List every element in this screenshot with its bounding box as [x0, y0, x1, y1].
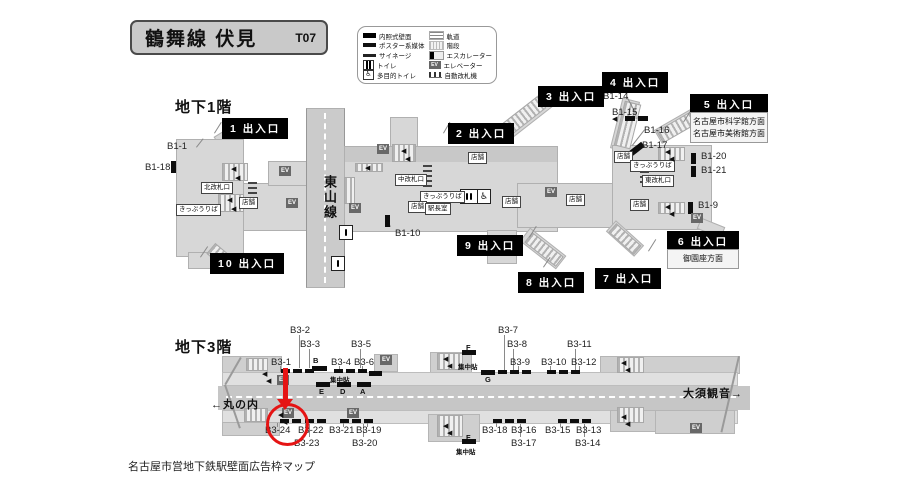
- ad-position-label: B3-5: [351, 339, 371, 350]
- elevator-box: EV: [279, 166, 291, 176]
- person-glyph: [466, 193, 468, 200]
- elevator-box: EV: [690, 423, 702, 433]
- ad-position-label: B1-10: [395, 228, 420, 239]
- position-letter-label: A: [360, 387, 365, 396]
- ad-media-bar: [547, 370, 556, 374]
- ad-media-bar: [334, 369, 343, 373]
- escalator-arrow-icon: ◀: [262, 371, 267, 378]
- position-letter-label: C: [374, 369, 379, 378]
- escalator-arrow-icon: ◀: [443, 423, 448, 430]
- ad-position-label: B1-18: [145, 162, 170, 173]
- ad-position-label: B3-6: [354, 357, 374, 368]
- escalator-arrow-icon: ◀: [625, 421, 630, 428]
- position-letter-label: D: [340, 387, 345, 396]
- ad-position-label: B3-10: [541, 357, 566, 368]
- highlight-arrow: [283, 368, 288, 401]
- multi-toilet-icon: ♿: [477, 189, 491, 204]
- exit-label: 4 出入口: [602, 72, 668, 93]
- escalator-arrow-icon: ◀: [621, 414, 626, 421]
- ad-position-label: B3-4: [331, 357, 351, 368]
- facility-label: 店舗: [502, 196, 521, 208]
- ad-media-bar: [385, 215, 390, 227]
- b3-upper-platform: [222, 372, 738, 386]
- stairs: [246, 358, 268, 371]
- exit-label: 9 出入口: [457, 235, 523, 256]
- leader-line: [309, 349, 310, 368]
- ad-media-bar: [493, 419, 502, 423]
- position-letter-label: F: [466, 433, 471, 442]
- escalator-arrow-icon: ◀: [669, 156, 674, 163]
- position-letter-label: G: [485, 375, 491, 384]
- ad-media-bar: [293, 369, 302, 373]
- ad-media-bar: [510, 370, 519, 374]
- escalator-arrow-icon: ◀: [665, 204, 670, 211]
- elevator-box: EV: [380, 355, 392, 365]
- escalator-arrow-icon: ◀: [266, 378, 271, 385]
- ad-media-bar: [691, 153, 696, 164]
- ad-media-bar: [317, 419, 326, 423]
- person-glyph: [470, 193, 472, 200]
- escalator-arrow-icon: ◀: [405, 156, 410, 163]
- ad-media-bar: [352, 419, 361, 423]
- position-letter-label: E: [319, 387, 324, 396]
- ad-position-label: B3-3: [300, 339, 320, 350]
- ad-media-bar: [364, 419, 373, 423]
- ad-media-bar: [582, 419, 591, 423]
- elevator-box: EV: [691, 213, 703, 223]
- elevator-box: EV: [377, 144, 389, 154]
- position-letter-label: B: [313, 356, 318, 365]
- ad-position-label: B1-15: [612, 107, 637, 118]
- toilet-icon: [339, 225, 353, 240]
- escalator-arrow-icon: ◀: [443, 356, 448, 363]
- toilet-icon: [331, 256, 345, 271]
- elevator-box: EV: [545, 187, 557, 197]
- stairs: [344, 177, 355, 204]
- facility-label: きっぷうりば: [176, 204, 221, 216]
- exit-label: 1 出入口: [222, 118, 288, 139]
- ad-position-label: B3-20: [352, 438, 377, 449]
- ad-position-label: B3-1: [271, 357, 291, 368]
- ad-position-label: B3-16: [511, 425, 536, 436]
- cluster-posting-label: 集中貼: [456, 446, 476, 456]
- exit-label: 8 出入口: [518, 272, 584, 293]
- ad-position-label: B3-19: [356, 425, 381, 436]
- facility-label: 北改札口: [201, 182, 233, 194]
- facility-label: 駅長室: [425, 203, 451, 215]
- ad-position-label: B3-2: [290, 325, 310, 336]
- facility-label: 中改札口: [395, 174, 427, 186]
- exit-info-box: 御園座方面: [667, 249, 739, 269]
- station-ad-map: 鶴舞線 伏見 T07 地下1階 地下3階 内照式壁面ポスター系媒体サイネージトイ…: [0, 0, 919, 491]
- ad-position-label: B1-16: [644, 125, 669, 136]
- escalator-arrow-icon: ◀: [231, 166, 236, 173]
- elevator-box: EV: [349, 203, 361, 213]
- exit-label: 7 出入口: [595, 268, 661, 289]
- escalator-arrow-icon: ◀: [235, 175, 240, 182]
- ad-position-label: B3-7: [498, 325, 518, 336]
- escalator-arrow-icon: ◀: [401, 148, 406, 155]
- escalator-arrow-icon: ◀: [447, 363, 452, 370]
- leader-line: [504, 335, 505, 370]
- ad-media-bar: [517, 419, 526, 423]
- ad-media-bar: [346, 369, 355, 373]
- ad-position-label: B3-13: [576, 425, 601, 436]
- ad-position-label: B3-11: [567, 339, 592, 350]
- ad-position-label: B1-17: [642, 140, 667, 151]
- person-glyph: [345, 229, 347, 236]
- cluster-posting-label: 集中貼: [458, 361, 478, 371]
- ad-media-bar: [570, 419, 579, 423]
- ad-position-label: B1-9: [698, 200, 718, 211]
- exit-label: 2 出入口: [448, 123, 514, 144]
- elevator-box: EV: [347, 408, 359, 418]
- position-letter-label: F: [466, 343, 471, 352]
- escalator-arrow-icon: ◀: [365, 165, 370, 172]
- escalator-arrow-icon: ◀: [447, 430, 452, 437]
- elevator-box: EV: [286, 198, 298, 208]
- cluster-posting-label: 集中貼: [330, 374, 350, 384]
- ad-media-bar: [340, 419, 349, 423]
- ad-position-label: B3-17: [511, 438, 536, 449]
- escalator-arrow-icon: ◀: [231, 206, 236, 213]
- escalator-arrow-icon: ◀: [621, 360, 626, 367]
- ad-media-bar: [312, 366, 327, 371]
- track-centerline: [226, 396, 736, 398]
- escalator-arrow-icon: ◀: [625, 367, 630, 374]
- ad-position-label: B1-21: [701, 165, 726, 176]
- ad-position-label: B3-21: [329, 425, 354, 436]
- exit-label: 3 出入口: [538, 86, 604, 107]
- map-caption: 名古屋市営地下鉄駅壁面広告枠マップ: [128, 458, 315, 474]
- ad-media-bar: [691, 166, 696, 177]
- facility-label: 店舗: [630, 199, 649, 211]
- facility-label: 東改札口: [642, 175, 674, 187]
- ad-position-label: B3-8: [507, 339, 527, 350]
- ad-position-label: B3-15: [545, 425, 570, 436]
- ad-media-bar: [171, 161, 176, 173]
- ad-media-bar: [498, 370, 507, 374]
- facility-label: 店舗: [468, 152, 487, 164]
- direction-label: ←丸の内: [211, 396, 259, 412]
- ad-media-bar: [505, 419, 514, 423]
- ad-position-label: B3-18: [482, 425, 507, 436]
- exit-info-line: 名古屋市科学館方面: [692, 116, 766, 128]
- ad-position-label: B3-14: [575, 438, 600, 449]
- exit-info-line: 御園座方面: [669, 253, 737, 265]
- ad-media-bar: [358, 369, 367, 373]
- highlight-arrow-head: [277, 399, 293, 410]
- ad-position-label: B1-1: [167, 141, 187, 152]
- ad-media-bar: [559, 370, 568, 374]
- ad-media-bar: [638, 116, 648, 121]
- exit-info-box: 名古屋市科学館方面名古屋市美術館方面: [690, 112, 768, 143]
- escalator-arrow-icon: ◀: [669, 211, 674, 218]
- ad-media-bar: [522, 370, 531, 374]
- exit-label: 10 出入口: [210, 253, 284, 274]
- facility-label: 店舗: [566, 194, 585, 206]
- escalator-arrow-icon: ◀: [227, 197, 232, 204]
- exit-info-line: 名古屋市美術館方面: [692, 128, 766, 140]
- direction-label: 大須観音→: [683, 385, 743, 401]
- ad-position-label: B3-12: [571, 357, 596, 368]
- facility-label: 店舗: [239, 197, 258, 209]
- ad-media-bar: [558, 419, 567, 423]
- ticket-gates: [248, 180, 257, 194]
- ad-position-label: B3-9: [510, 357, 530, 368]
- person-glyph: [337, 260, 339, 267]
- ad-position-label: B1-20: [701, 151, 726, 162]
- ad-media-bar: [571, 370, 580, 374]
